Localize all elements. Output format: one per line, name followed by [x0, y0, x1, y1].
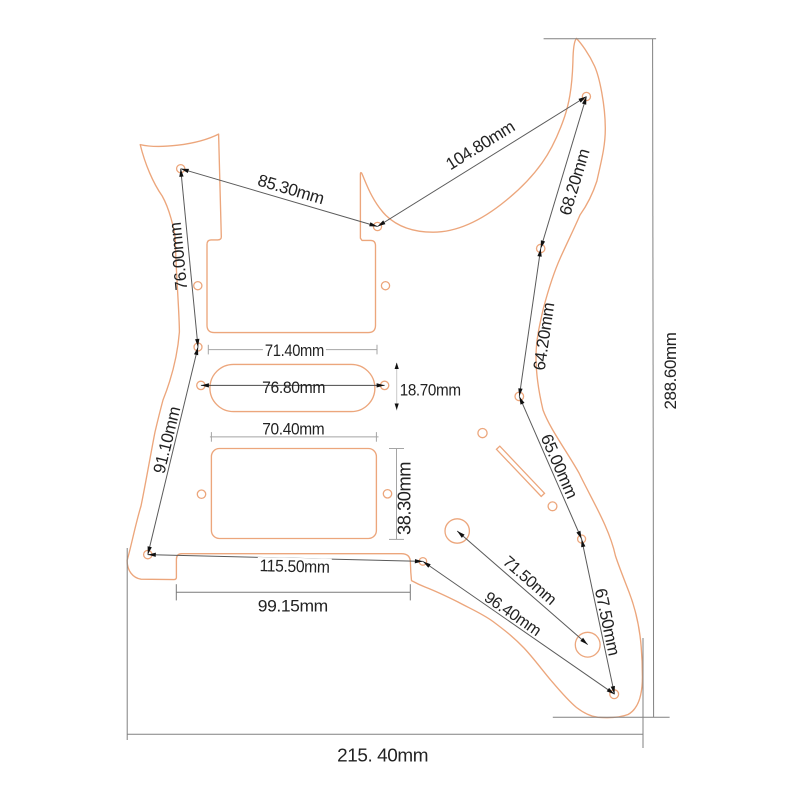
svg-text:70.40mm: 70.40mm [262, 420, 324, 439]
svg-text:64.20mm: 64.20mm [530, 301, 559, 371]
svg-text:91.10mm: 91.10mm [150, 405, 185, 476]
svg-text:85.30mm: 85.30mm [256, 171, 327, 209]
svg-text:67.50mm: 67.50mm [591, 587, 624, 658]
svg-text:99.15mm: 99.15mm [258, 597, 328, 616]
svg-text:68.20mm: 68.20mm [556, 147, 594, 218]
svg-text:71.40mm: 71.40mm [265, 341, 324, 360]
svg-text:76.00mm: 76.00mm [166, 221, 191, 291]
svg-text:288.60mm: 288.60mm [661, 332, 680, 409]
svg-text:215. 40mm: 215. 40mm [337, 744, 428, 765]
svg-text:38.30mm: 38.30mm [394, 462, 414, 535]
svg-text:76.80mm: 76.80mm [262, 378, 325, 397]
svg-text:18.70mm: 18.70mm [400, 380, 461, 399]
svg-text:115.50mm: 115.50mm [259, 556, 330, 577]
svg-text:104.80mm: 104.80mm [443, 117, 519, 174]
